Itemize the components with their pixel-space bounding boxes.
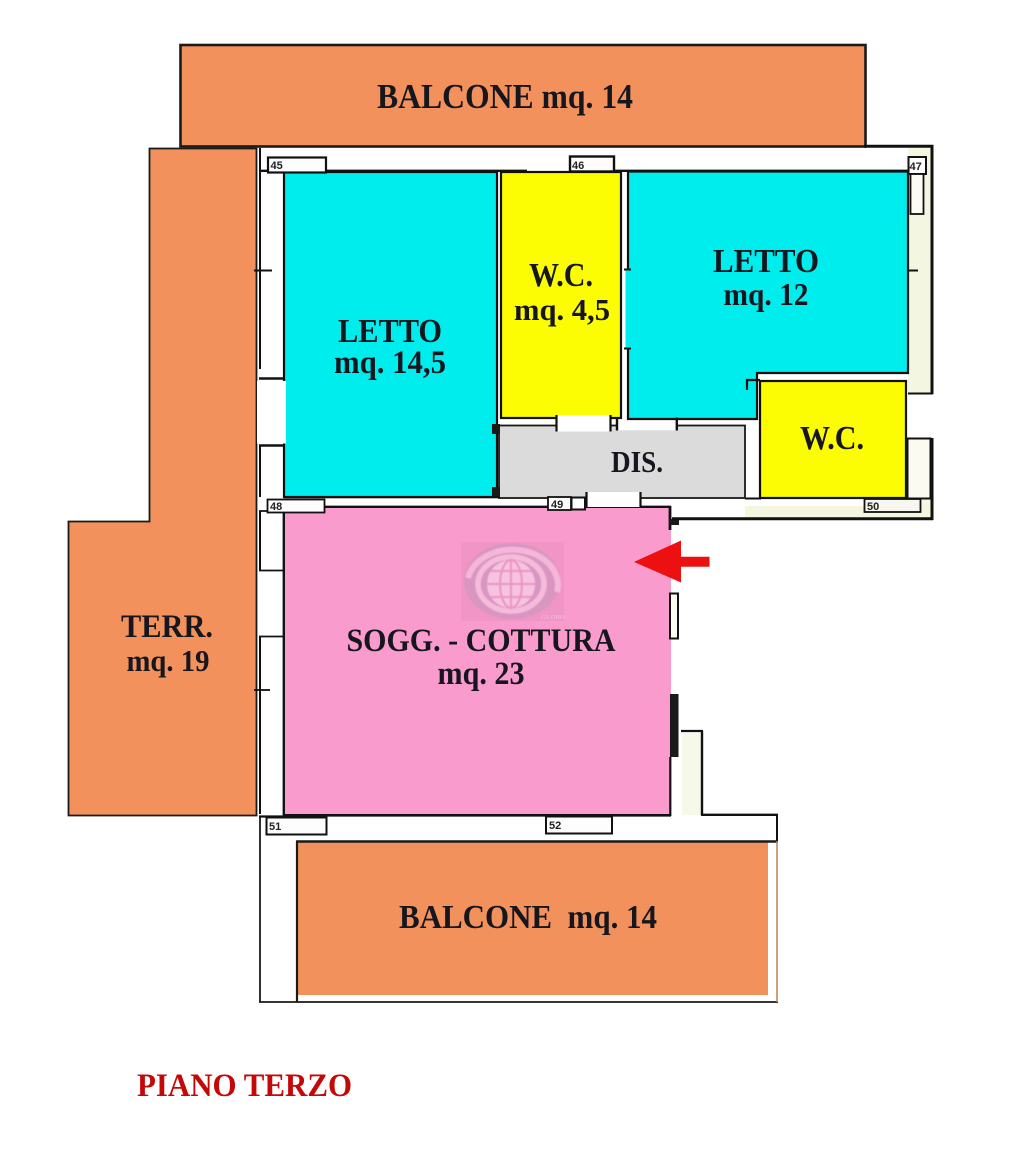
svg-text:48: 48	[270, 501, 282, 513]
svg-text:BALCONE mq. 14: BALCONE mq. 14	[399, 899, 657, 936]
svg-text:mq. 14,5: mq. 14,5	[334, 345, 446, 381]
svg-text:51: 51	[269, 821, 281, 833]
svg-text:PIANO TERZO: PIANO TERZO	[137, 1068, 352, 1104]
svg-text:mq. 4,5: mq. 4,5	[514, 292, 610, 327]
svg-text:TERR.: TERR.	[121, 609, 213, 645]
svg-text:49: 49	[551, 499, 563, 511]
svg-text:DIS.: DIS.	[611, 444, 663, 479]
svg-text:46: 46	[572, 160, 584, 172]
svg-text:SOGG. - COTTURA: SOGG. - COTTURA	[347, 623, 616, 659]
svg-text:GLOBO: GLOBO	[541, 614, 565, 621]
svg-text:47: 47	[910, 161, 922, 173]
svg-text:W.C.: W.C.	[800, 420, 864, 457]
svg-text:BALCONE mq. 14: BALCONE mq. 14	[377, 77, 633, 116]
svg-text:mq. 19: mq. 19	[127, 643, 210, 678]
svg-text:45: 45	[271, 160, 283, 172]
svg-text:W.C.: W.C.	[529, 257, 593, 294]
svg-text:50: 50	[867, 501, 879, 513]
svg-text:LETTO: LETTO	[713, 243, 819, 280]
svg-text:52: 52	[549, 820, 561, 832]
svg-text:mq. 23: mq. 23	[438, 656, 525, 692]
svg-text:mq. 12: mq. 12	[724, 276, 809, 312]
